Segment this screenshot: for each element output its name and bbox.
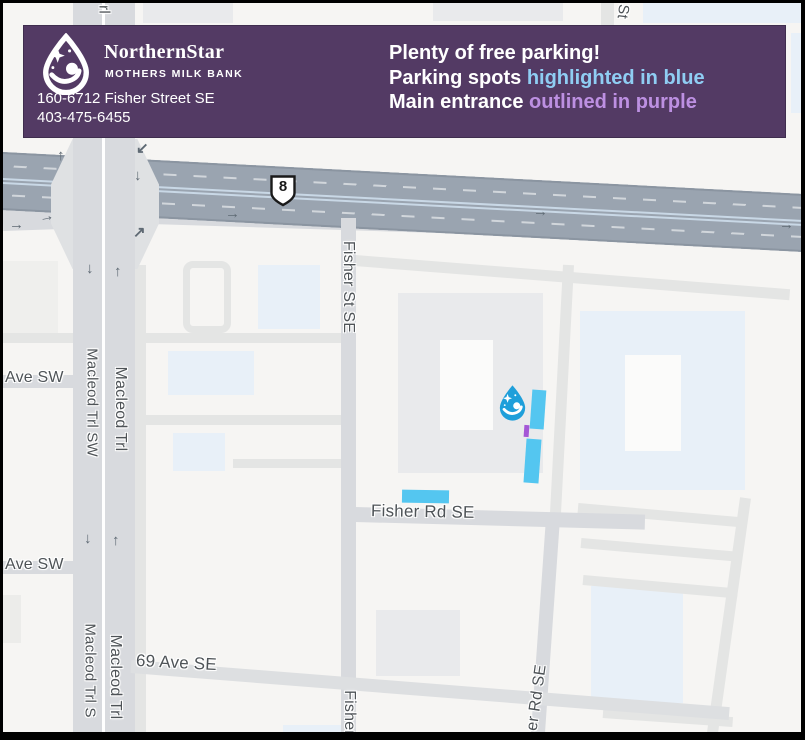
arrow-up-icon: ↑ [114, 264, 122, 279]
street-label-fragment: rl [96, 0, 113, 20]
street-label-macleod-trl-sw: Macleod Trl SW [84, 347, 101, 459]
street-label-ave-sw-lower: Ave SW [5, 556, 64, 574]
arrow-down-left-icon: ↙ [136, 141, 149, 156]
message-line-3-highlight: outlined in purple [529, 91, 697, 113]
address-line: 160-6712 Fisher Street SE [37, 89, 215, 108]
arrow-down-icon: ↓ [84, 531, 92, 546]
parking-highlight [402, 490, 449, 504]
street-label-fisher-rd-se: Fisher Rd SE [371, 501, 475, 523]
message-line-2-prefix: Parking spots [389, 67, 527, 89]
arrow-right-icon: → [533, 204, 548, 219]
message-line-3: Main entrance outlined in purple [389, 90, 705, 115]
access-road [550, 265, 574, 521]
access-road [581, 538, 741, 562]
building-footprint [3, 261, 58, 333]
building-footprint [258, 265, 320, 329]
building-footprint [283, 725, 343, 740]
droplet-map-marker-icon [497, 384, 528, 422]
milk-bank-map-marker [497, 384, 528, 427]
route-shield-8: 8 [269, 174, 297, 208]
access-road [233, 459, 353, 468]
street-label-macleod-trl-lower: Macleod Trl [106, 634, 124, 720]
brand-subtitle: MOTHERS MILK BANK [105, 68, 243, 80]
street-label-69-ave-se: 69 Ave SE [136, 651, 218, 675]
message-block: Plenty of free parking! Parking spots hi… [389, 41, 705, 115]
street-label-fisher-partial: Fisher [340, 690, 358, 736]
parking-highlight [523, 439, 541, 484]
droplet-logo-icon [38, 33, 94, 95]
message-line-2: Parking spots highlighted in blue [389, 66, 705, 91]
building-footprint [376, 610, 460, 676]
building-courtyard [440, 340, 493, 430]
building-footprint [168, 351, 254, 395]
arrow-right-icon: → [38, 208, 56, 226]
arrow-right-icon: → [779, 217, 794, 232]
building-footprint [591, 586, 683, 703]
building-footprint [433, 3, 563, 21]
building-footprint [791, 33, 805, 113]
street-label-fragment: St [613, 0, 634, 27]
message-line-2-highlight: highlighted in blue [527, 67, 705, 89]
building-footprint [643, 3, 805, 23]
street-label-macleod-trl-s: Macleod Trl S [82, 621, 99, 721]
arrow-down-icon: ↓ [134, 168, 142, 183]
message-line-1: Plenty of free parking! [389, 41, 705, 66]
message-line-3-prefix: Main entrance [389, 91, 529, 113]
access-road [131, 415, 353, 425]
map-flyer: 8 ↑ ↙ ↓ → → ↗ ↓ ↑ → → → ↓ ↑ rl St Fisher… [0, 0, 805, 740]
building-footprint [3, 595, 21, 643]
arrow-down-icon: ↓ [86, 261, 94, 276]
address-block: 160-6712 Fisher Street SE 403-475-6455 [37, 89, 215, 127]
route-shield-number: 8 [269, 178, 297, 195]
brand-name: NorthernStar [104, 41, 224, 64]
arrow-right-icon: → [9, 217, 24, 232]
street-label-ave-sw-upper: Ave SW [5, 369, 64, 387]
access-road [3, 333, 353, 343]
parking-highlight [530, 390, 547, 430]
building-footprint [173, 433, 225, 471]
arrow-up-right-icon: ↗ [133, 225, 146, 240]
building-courtyard [625, 355, 681, 451]
access-road-loop [183, 261, 231, 333]
street-label-macleod-trl: Macleod Trl [111, 366, 129, 452]
arrow-up-icon: ↑ [57, 148, 65, 163]
arrow-right-icon: → [225, 206, 240, 221]
access-road [706, 497, 751, 740]
phone-number: 403-475-6455 [37, 108, 215, 127]
arrow-up-icon: ↑ [112, 533, 120, 548]
info-banner: NorthernStar MOTHERS MILK BANK 160-6712 … [23, 25, 786, 138]
street-label-fisher-st-se: Fisher St SE [339, 239, 357, 335]
building-footprint [143, 3, 233, 23]
